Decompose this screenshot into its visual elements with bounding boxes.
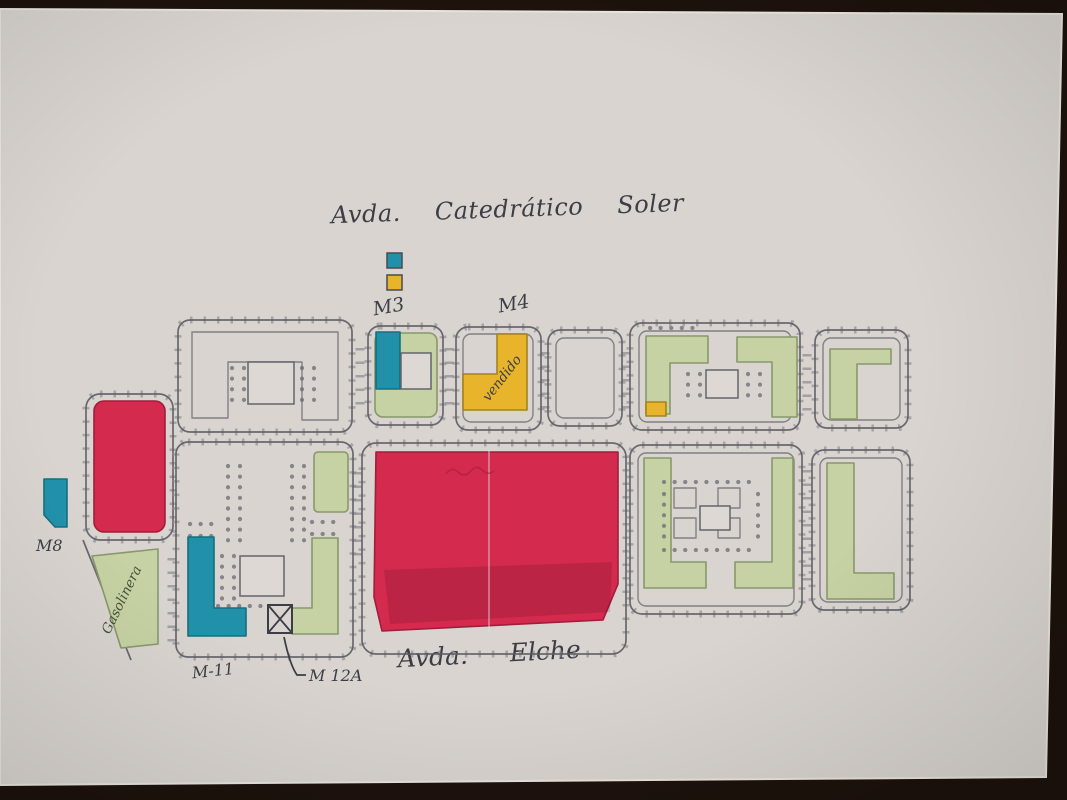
photo-vignette bbox=[0, 0, 1067, 800]
plan-drawing: Avda. Catedrático Soler Avda. Elche M3 bbox=[0, 0, 1067, 800]
photo-of-hand-drawn-urban-plan: Avda. Catedrático Soler Avda. Elche M3 bbox=[0, 0, 1067, 800]
